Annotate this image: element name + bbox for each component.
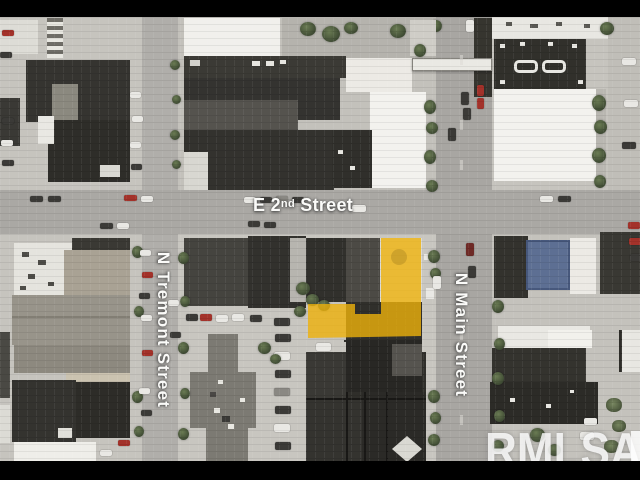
tree [318,300,330,311]
car [540,196,553,202]
letterbox-bottom [0,461,640,480]
tree [492,372,504,385]
building [306,400,362,461]
car [558,196,571,202]
roof-speck [584,24,590,28]
car [30,196,43,202]
roof-vent [546,404,551,408]
car [142,272,153,278]
roof-speck [556,22,562,26]
car [628,222,640,229]
building [570,238,596,294]
roof-vent [228,424,234,429]
car [130,142,141,148]
tree [424,100,436,114]
car [264,222,276,228]
car [200,314,212,321]
map-scene [0,0,640,480]
car [275,334,291,342]
rooftop-hvac [514,60,538,73]
roof-vent [350,166,355,170]
car [466,20,474,32]
roof-speck [20,286,26,290]
car [100,223,113,229]
car [2,160,14,166]
car [124,195,137,201]
tree [494,410,505,422]
car [275,406,291,414]
tree [322,26,340,42]
building [548,330,592,348]
tree [180,388,190,399]
building [0,20,38,54]
building-blue-roof [526,240,570,290]
building [12,295,130,345]
roof-vent [218,380,223,384]
tree [428,390,440,403]
car [141,410,152,416]
building [622,330,640,372]
tree [180,296,190,307]
car [466,243,474,256]
tree [296,282,310,295]
roof-vent [520,42,525,46]
tree [134,426,144,437]
car [622,142,636,149]
street-label-n-main: N Main Street [451,273,471,397]
car [2,118,14,124]
tree [294,306,306,317]
car [216,315,228,322]
car [629,238,640,245]
car [477,85,484,96]
car [131,164,142,170]
street-label-e-2nd-post: Street [295,195,353,215]
tree [428,250,440,263]
car [275,442,291,450]
building [14,442,96,461]
car [248,221,260,227]
roof-vent [240,398,245,402]
roof-speck [506,22,512,26]
roof-speck [530,24,538,28]
building [0,405,10,443]
car [100,450,112,456]
building [332,130,372,188]
roof-patch [38,116,54,144]
roof-patch [52,84,78,120]
car [622,58,636,65]
sky-bridge [412,58,492,71]
tree [258,342,271,354]
roof-speck [222,416,230,422]
car [316,343,331,351]
roof-speck [48,282,54,286]
car [132,116,143,122]
roof-vent [190,60,200,66]
building [306,352,346,400]
car [448,128,456,141]
car [461,92,469,105]
building [474,18,492,58]
building [306,238,346,302]
building [208,334,238,374]
car [274,318,290,326]
car [140,250,151,256]
lane-marking [460,55,463,65]
building [346,238,380,302]
car [2,30,14,36]
building [370,92,426,188]
tree [594,120,607,134]
aerial-map-screenshot: E 2nd Street N Tremont Street N Main Str… [0,0,640,480]
tree [270,354,281,364]
tree [170,60,180,70]
roof-vent [570,390,574,393]
tree [344,22,358,34]
street-label-e-2nd-pre: E 2 [253,195,281,215]
tree [430,412,441,424]
car [117,223,129,229]
roof-vent [214,408,220,413]
car [232,314,244,321]
roof-seam [306,398,426,400]
roof-speck [22,252,29,257]
car [1,140,13,146]
building [492,348,586,382]
rooftop-structure [47,18,63,58]
car [275,370,291,378]
lane-marking [460,120,463,130]
tree [592,148,606,163]
building [346,58,412,92]
tree [172,160,181,169]
tree [300,22,316,36]
building [184,100,298,130]
car [139,293,150,299]
building [76,382,130,438]
letterbox-top [0,0,640,17]
building [490,382,598,424]
tree [172,95,181,104]
building [392,344,422,376]
building [494,89,602,181]
roof-patch [100,165,120,177]
tree [390,24,406,38]
car [48,196,61,202]
roof-seam [386,392,388,461]
bush [606,398,622,412]
tree [178,342,189,354]
roof-speck [28,274,35,279]
roof-vent [500,44,505,48]
car [139,388,150,394]
roof-vent [266,61,274,66]
roof-seam [12,316,130,318]
car [630,254,640,261]
roof-vent [548,42,553,46]
car [463,108,471,120]
roof-speck [38,260,46,265]
car [130,92,141,98]
car [141,196,153,202]
building [14,345,130,373]
watermark-partial-letter [631,431,640,461]
tree [492,300,504,313]
roof-seam [346,392,348,461]
roof-vent [500,80,505,84]
tree [592,95,606,111]
tree [428,434,440,446]
car [141,315,152,321]
roof-patch [58,428,72,438]
lane-marking [460,160,463,170]
car [352,205,366,212]
street-label-e-2nd: E 2nd Street [253,195,353,216]
car [118,440,130,446]
tree [414,44,426,57]
roof-speck [210,392,216,397]
roof-vent [572,44,577,48]
street-label-e-2nd-sup: nd [281,198,295,210]
tree [178,252,189,264]
car [433,276,441,289]
roof-patch [426,288,434,299]
building [72,238,130,250]
roof-vent [510,398,515,402]
tree [494,338,505,350]
building [184,18,280,56]
car [274,424,290,432]
car [0,52,12,58]
tree [178,428,189,440]
car [477,98,484,109]
building [494,236,528,298]
roof-vent [578,80,583,84]
car [250,315,262,322]
tree [424,150,436,164]
tree [426,122,438,134]
car [142,350,153,356]
roof-vent [338,150,343,154]
building [0,332,10,398]
car [624,100,638,107]
building [26,60,130,122]
roof-vent [280,60,286,64]
building [64,250,130,300]
roof-patch [184,152,208,190]
building [184,238,248,306]
building [184,56,346,78]
street-label-n-tremont: N Tremont Street [153,252,173,408]
car [186,314,198,321]
tree [594,175,606,188]
building [344,302,422,342]
roof-vent [252,61,260,66]
rooftop-hvac [542,60,566,73]
tree [600,22,614,35]
building [206,428,248,461]
car [274,388,290,396]
lane-marking [460,415,463,425]
roof-seam [364,392,366,461]
tree [426,180,438,192]
tree [170,130,180,140]
